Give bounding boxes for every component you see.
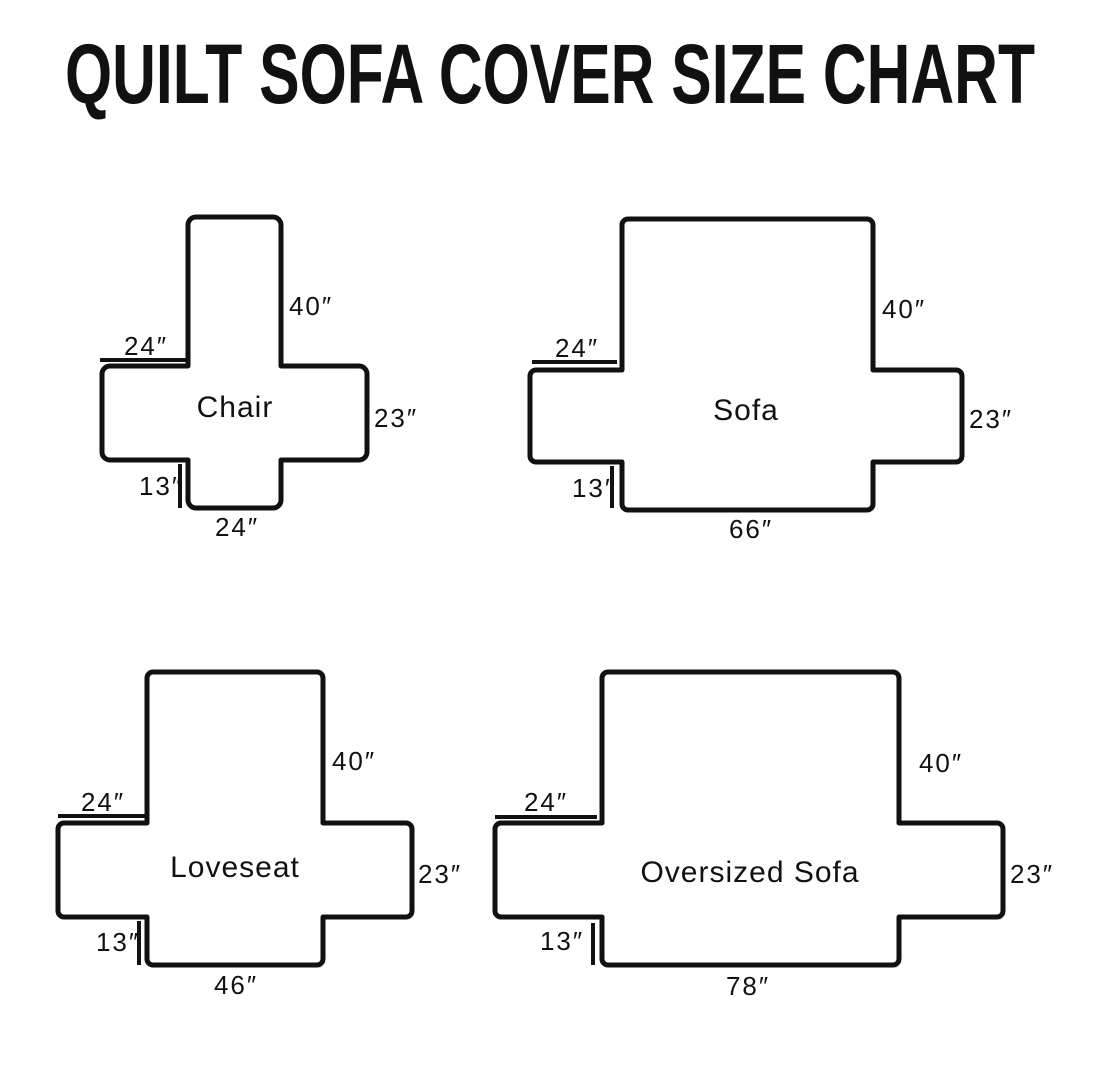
size-chart-page: QUILT SOFA COVER SIZE CHART 24″ 40″ Chai… bbox=[0, 0, 1100, 1092]
oversized-sofa-back-height-label: 40″ bbox=[919, 748, 963, 778]
page-title: QUILT SOFA COVER SIZE CHART bbox=[65, 27, 1035, 121]
loveseat-skirt-drop-label: 13″ bbox=[96, 927, 140, 957]
oversized-sofa-seat-width-label: 78″ bbox=[726, 971, 770, 1001]
loveseat-arm-depth-label: 23″ bbox=[418, 859, 462, 889]
oversized-sofa-arm-depth-label: 23″ bbox=[1010, 859, 1054, 889]
chair-diagram: 24″ 40″ Chair 23″ 13″ 24″ bbox=[100, 217, 418, 542]
chair-name-label: Chair bbox=[197, 391, 274, 424]
chair-cover-outline bbox=[102, 217, 367, 508]
chair-seat-width-label: 24″ bbox=[215, 512, 259, 542]
sofa-seat-width-label: 66″ bbox=[729, 514, 773, 544]
size-chart-canvas: QUILT SOFA COVER SIZE CHART 24″ 40″ Chai… bbox=[0, 0, 1100, 1092]
sofa-back-height-label: 40″ bbox=[882, 294, 926, 324]
sofa-arm-depth-label: 23″ bbox=[969, 404, 1013, 434]
oversized-sofa-arm-width-label: 24″ bbox=[524, 787, 568, 817]
sofa-diagram: 24″ 40″ Sofa 23″ 13″ 66″ bbox=[530, 219, 1013, 544]
chair-back-height-label: 40″ bbox=[289, 291, 333, 321]
oversized-sofa-skirt-drop-label: 13″ bbox=[540, 926, 584, 956]
loveseat-diagram: 24″ 40″ Loveseat 23″ 13″ 46″ bbox=[58, 672, 462, 1000]
chair-arm-depth-label: 23″ bbox=[374, 403, 418, 433]
loveseat-cover-outline bbox=[58, 672, 412, 965]
sofa-arm-width-label: 24″ bbox=[555, 333, 599, 363]
oversized-sofa-diagram: 24″ 40″ Oversized Sofa 23″ 13″ 78″ bbox=[495, 672, 1054, 1001]
chair-arm-width-label: 24″ bbox=[124, 331, 168, 361]
loveseat-name-label: Loveseat bbox=[170, 851, 300, 884]
loveseat-seat-width-label: 46″ bbox=[214, 970, 258, 1000]
loveseat-back-height-label: 40″ bbox=[332, 746, 376, 776]
oversized-sofa-name-label: Oversized Sofa bbox=[640, 856, 859, 889]
loveseat-arm-width-label: 24″ bbox=[81, 787, 125, 817]
sofa-skirt-drop-label: 13″ bbox=[572, 473, 616, 503]
sofa-cover-outline bbox=[530, 219, 962, 510]
chair-skirt-drop-label: 13″ bbox=[139, 471, 183, 501]
sofa-name-label: Sofa bbox=[713, 394, 779, 427]
